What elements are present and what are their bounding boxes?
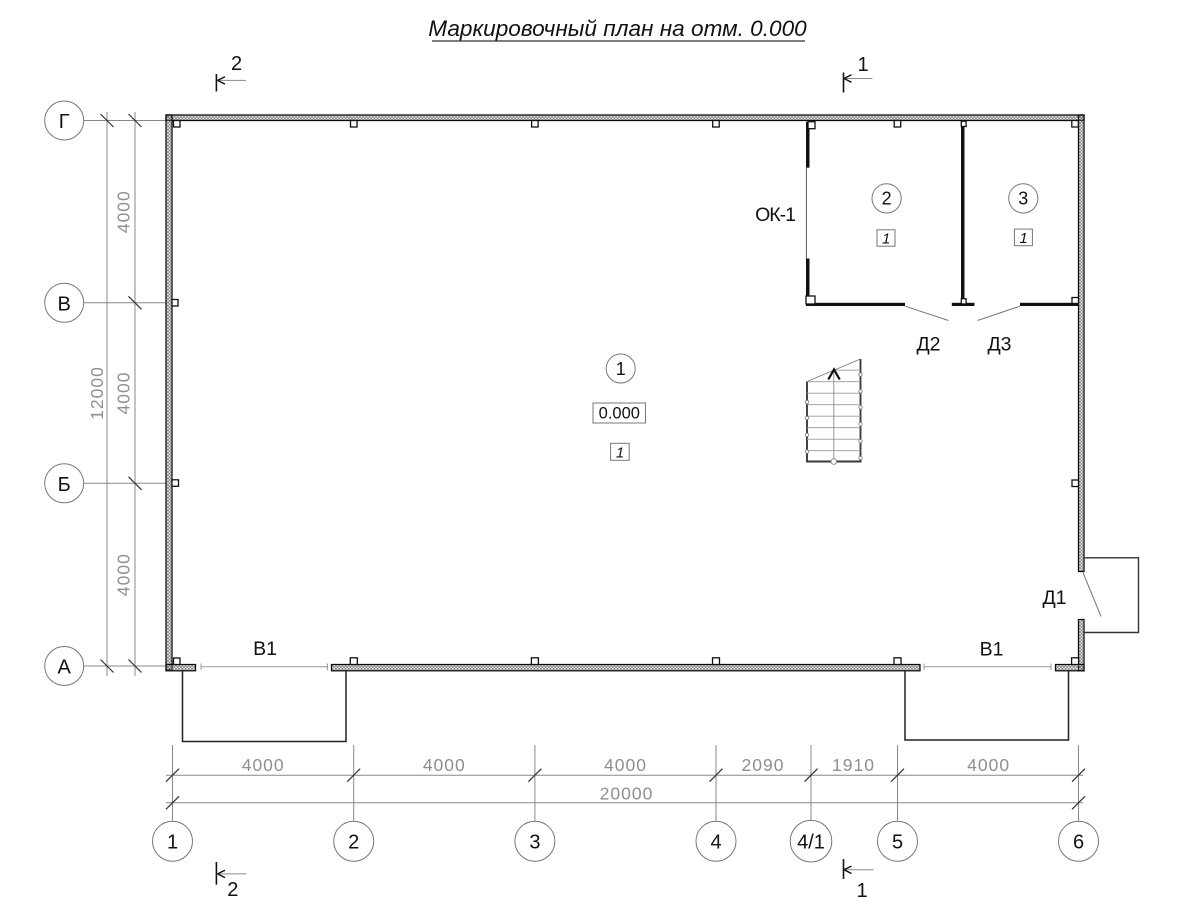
svg-text:4000: 4000 — [604, 755, 647, 775]
svg-text:4000: 4000 — [967, 755, 1010, 775]
svg-text:В1: В1 — [253, 638, 277, 660]
svg-text:2: 2 — [348, 832, 359, 854]
svg-text:А: А — [58, 657, 72, 679]
svg-text:2: 2 — [231, 53, 242, 75]
svg-text:2090: 2090 — [742, 755, 785, 775]
svg-text:Д3: Д3 — [987, 334, 1011, 356]
svg-text:Д2: Д2 — [916, 334, 940, 356]
svg-text:0.000: 0.000 — [599, 405, 640, 423]
svg-text:4/1: 4/1 — [797, 832, 825, 854]
svg-text:3: 3 — [1018, 189, 1028, 209]
svg-text:1: 1 — [616, 359, 626, 379]
svg-text:1: 1 — [167, 832, 178, 854]
svg-text:1: 1 — [857, 54, 868, 76]
svg-text:1910: 1910 — [832, 755, 875, 775]
svg-text:20000: 20000 — [600, 784, 654, 804]
svg-text:2: 2 — [227, 879, 238, 900]
svg-text:В1: В1 — [980, 639, 1004, 661]
svg-text:ОК-1: ОК-1 — [755, 204, 795, 226]
svg-text:4000: 4000 — [114, 190, 134, 233]
svg-text:2: 2 — [882, 189, 892, 209]
svg-text:4: 4 — [710, 832, 721, 854]
svg-text:Д1: Д1 — [1042, 587, 1066, 609]
svg-text:5: 5 — [892, 832, 903, 854]
svg-text:6: 6 — [1073, 832, 1084, 854]
svg-text:1: 1 — [856, 880, 867, 900]
svg-text:3: 3 — [529, 832, 540, 854]
svg-text:4000: 4000 — [423, 755, 466, 775]
svg-text:1: 1 — [616, 444, 624, 461]
svg-text:Маркировочный план на отм. 0.0: Маркировочный план на отм. 0.000 — [428, 16, 807, 41]
svg-text:4000: 4000 — [114, 372, 134, 415]
svg-text:4000: 4000 — [242, 755, 285, 775]
svg-text:4000: 4000 — [114, 553, 134, 596]
svg-text:Б: Б — [58, 474, 71, 496]
svg-text:12000: 12000 — [87, 366, 107, 420]
svg-text:В: В — [58, 293, 71, 315]
svg-text:1: 1 — [1019, 230, 1027, 247]
svg-text:1: 1 — [882, 230, 890, 247]
svg-text:Г: Г — [59, 111, 70, 133]
